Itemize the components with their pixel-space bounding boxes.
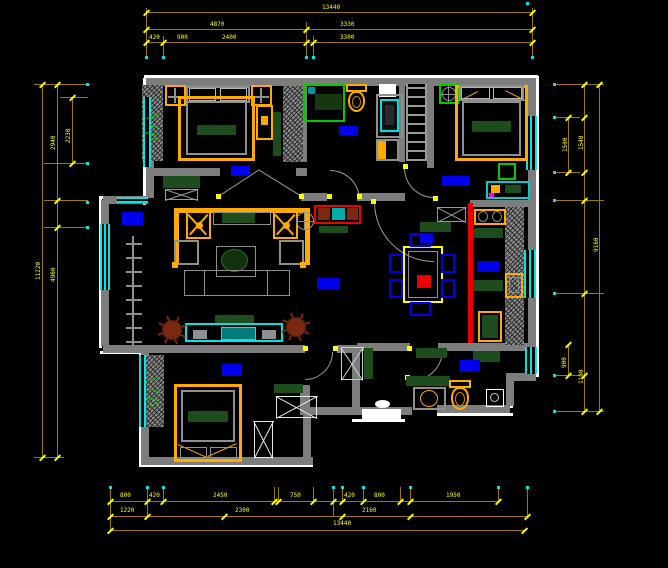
door-hinge [216, 194, 221, 199]
armchair-trim [300, 262, 306, 268]
dim-label: 2160 [362, 508, 376, 514]
dining-chair [441, 279, 455, 298]
dim-dot [531, 56, 534, 59]
potted-plant-leaf [305, 321, 310, 325]
cabinet-decor [347, 208, 358, 220]
potted-plant-leaf [304, 331, 309, 335]
dim-line [527, 487, 528, 516]
dim-line [57, 84, 58, 457]
dim-label: 4870 [210, 22, 224, 28]
potted-plant [286, 317, 306, 337]
potted-plant-leaf [166, 315, 170, 320]
dim-label: 9160 [594, 238, 600, 252]
wall-segment [146, 168, 220, 176]
burner [492, 211, 502, 222]
dining-label [420, 234, 433, 243]
wall-segment [357, 193, 405, 201]
fan-symbol [296, 221, 314, 222]
dim-dot [553, 83, 556, 86]
dim-dot [497, 486, 500, 489]
wall-segment [301, 193, 327, 201]
dim-label: 800 [120, 493, 131, 499]
potted-plant-leaf [158, 322, 163, 326]
dim-dot [332, 486, 335, 489]
tv-shelf [215, 315, 254, 323]
entry-symbol [375, 400, 390, 408]
dim-line [42, 84, 43, 457]
window-line [104, 224, 106, 290]
ceiling-lamp [174, 88, 176, 103]
dim-label: 1500 [563, 138, 569, 152]
window-line [535, 116, 537, 170]
door-arc [305, 352, 333, 380]
table-plant [221, 249, 248, 272]
dim-label: 1100 [579, 370, 585, 384]
detail-line [258, 169, 301, 196]
dining-chair [410, 302, 431, 316]
dim-dot [86, 162, 89, 165]
dim-line [44, 227, 88, 228]
potted-plant-leaf [176, 316, 180, 321]
desk-item [489, 193, 494, 197]
dim-label: 2300 [235, 508, 249, 514]
dim-tick [524, 513, 531, 520]
sofa-cushion-green [222, 213, 255, 223]
door-hinge [403, 164, 408, 169]
window-line [143, 97, 145, 167]
potted-plant-leaf [288, 335, 292, 340]
dim-label: 13440 [322, 5, 340, 11]
dim-line [110, 516, 527, 517]
window-line [534, 250, 536, 298]
window-line [117, 201, 148, 203]
dim-line [44, 200, 88, 201]
detail-line [126, 341, 142, 343]
door-hinge [299, 194, 304, 199]
door-arc [404, 168, 434, 198]
dim-line [584, 84, 585, 411]
burner [478, 211, 488, 222]
potted-plant-leaf [290, 312, 294, 317]
wall-segment [427, 78, 434, 168]
dim-label: 750 [290, 493, 301, 499]
dim-line [554, 200, 604, 201]
potted-plant-leaf [157, 332, 162, 336]
window-line [535, 347, 537, 374]
fan-symbol [304, 212, 305, 230]
potted-plant-leaf [300, 313, 304, 318]
dining-chair [441, 254, 455, 273]
dim-dot [86, 201, 89, 204]
detail-line [132, 236, 134, 346]
closet-shelf [274, 384, 303, 393]
wall-segment [103, 345, 145, 353]
tall-cabinet [273, 112, 281, 156]
door-hinge [303, 346, 308, 351]
cabinet-door [378, 141, 386, 159]
dim-label: 2450 [213, 493, 227, 499]
dim-label: 13440 [333, 521, 351, 527]
door-hinge [407, 346, 412, 351]
wall-segment [506, 373, 514, 406]
dim-label: 800 [374, 493, 385, 499]
ceiling-fan [448, 86, 449, 102]
shower-bench [315, 94, 342, 110]
sink-basin [509, 277, 519, 293]
cabinet-decor [332, 208, 345, 220]
dim-dot [145, 56, 148, 59]
bathroom2-label [460, 360, 480, 371]
bed-blanket [197, 125, 236, 135]
kitchen-label [477, 261, 499, 272]
dim-line [72, 97, 73, 163]
tv-item [262, 330, 276, 339]
window-line [108, 224, 110, 290]
wardrobe-hatch [283, 86, 303, 162]
dim-dot [553, 374, 556, 377]
prep-counter-top [482, 315, 498, 338]
dim-dot [526, 486, 529, 489]
dining-chair [389, 279, 403, 298]
door-hinge [357, 194, 362, 199]
bathroom-label [339, 126, 358, 135]
potted-plant-leaf [298, 336, 302, 341]
dim-line [110, 530, 524, 531]
window-line [530, 116, 532, 170]
dim-line [554, 293, 604, 294]
washer-drum [490, 393, 499, 402]
dim-dot [553, 292, 556, 295]
dim-label: 900 [562, 357, 568, 368]
hall-bench [163, 176, 200, 188]
dim-dot [553, 171, 556, 174]
dim-label: 420 [344, 493, 355, 499]
wall-segment [141, 345, 305, 353]
door-hinge [327, 194, 332, 199]
dim-dot [553, 410, 556, 413]
dim-label: 3330 [340, 22, 354, 28]
dim-dot [362, 486, 365, 489]
potted-plant [162, 320, 182, 340]
window-line [525, 347, 527, 374]
bed-drawer [210, 447, 237, 458]
detail-line [126, 285, 142, 287]
dim-tick [521, 527, 528, 534]
closet-ladder [406, 84, 427, 161]
sofa-corner-table-pot [196, 222, 203, 229]
shower-head [308, 87, 315, 94]
detail-line [126, 243, 142, 245]
dim-dot [526, 2, 529, 5]
dim-dot [305, 56, 308, 59]
dim-dot [86, 83, 89, 86]
window-line [100, 224, 102, 290]
dining-chair [389, 254, 403, 273]
wall-shelf [319, 226, 348, 233]
dresser-knob [261, 116, 268, 125]
tv-item [193, 330, 207, 339]
kitchen-counter [472, 228, 503, 238]
desk-item [505, 185, 521, 193]
potted-plant-leaf [164, 338, 168, 343]
dim-label: 1540 [579, 136, 585, 150]
dim-dot [553, 199, 556, 202]
wall-segment [303, 413, 311, 463]
dim-label: 11220 [36, 262, 42, 280]
dim-label: 2400 [222, 35, 236, 41]
door-arc [330, 170, 360, 200]
detail-line [126, 313, 142, 315]
dining-table-center [417, 275, 431, 288]
dim-dot [312, 56, 315, 59]
detail-line [126, 299, 142, 301]
door-hinge [333, 346, 338, 351]
dim-dot [86, 226, 89, 229]
sofa-corner-table-pot [283, 222, 290, 229]
desk-chair [498, 163, 516, 180]
desk-item [491, 185, 500, 193]
detail-line [126, 327, 142, 329]
bath-counter [416, 348, 447, 358]
dim-tick [495, 498, 502, 505]
dim-label: 2940 [51, 136, 57, 150]
bedroom-bottom-left-label [222, 364, 242, 376]
dim-label: 1220 [120, 508, 134, 514]
toilet-seat [455, 392, 465, 406]
kitchen-divider [468, 203, 473, 343]
toilet-seat [352, 96, 361, 108]
tv [221, 327, 256, 340]
door-hinge [433, 196, 438, 201]
wall-segment [296, 168, 307, 176]
dim-dot [109, 486, 112, 489]
window-line [139, 355, 141, 427]
door-hinge [371, 199, 376, 204]
dim-line [44, 163, 88, 164]
dim-line [146, 12, 532, 13]
wash-basin [420, 390, 438, 407]
pillow [493, 87, 522, 99]
potted-plant-leaf [174, 339, 178, 344]
bedroom-top-right-label [442, 176, 469, 186]
dim-line [110, 487, 111, 530]
kitchen-counter [472, 280, 503, 291]
dim-line [110, 501, 500, 502]
wall-segment [470, 200, 536, 207]
dim-label: 1950 [446, 493, 460, 499]
detail-line [126, 257, 142, 259]
dim-line [568, 344, 569, 375]
dim-dot [409, 486, 412, 489]
window-line [117, 197, 148, 199]
bed-drawer [180, 447, 207, 458]
dim-label: 420 [149, 493, 160, 499]
dim-dot [146, 486, 149, 489]
dim-line [146, 42, 532, 43]
window-line [524, 250, 526, 298]
wall-outline [437, 413, 513, 416]
dim-dot [553, 116, 556, 119]
shaft-shelf [364, 348, 373, 379]
cad-drawing-canvas[interactable]: 1344048703330420900240033008004202450750… [0, 0, 668, 568]
door-mat [362, 409, 401, 421]
dim-label: 420 [149, 35, 160, 41]
armchair-trim [172, 262, 178, 268]
potted-plant-leaf [281, 329, 286, 333]
dim-label: 4960 [51, 268, 57, 282]
mirror-inner [385, 105, 394, 125]
living-room-label [317, 278, 340, 289]
window-line [529, 250, 531, 298]
balcony-label [122, 212, 143, 225]
ceiling-lamp [260, 88, 262, 103]
dim-dot [162, 486, 165, 489]
pillow [461, 87, 490, 99]
hall-bench [420, 222, 451, 232]
cabinet-decor [318, 208, 330, 220]
bed-blanket [188, 411, 228, 422]
dim-label: 2230 [66, 129, 72, 143]
rug [184, 270, 290, 296]
bath-counter [406, 376, 450, 386]
dim-dot [162, 56, 165, 59]
dim-dot [341, 486, 344, 489]
dim-label: 900 [177, 35, 188, 41]
bedroom-top-left-label [231, 166, 250, 176]
dim-line [532, 8, 533, 58]
dim-line [146, 8, 147, 58]
bed-blanket [472, 121, 511, 132]
detail-line [126, 271, 142, 273]
dim-label: 3300 [340, 35, 354, 41]
dim-line [146, 29, 532, 30]
window-line [144, 355, 146, 427]
window-line [530, 347, 532, 374]
